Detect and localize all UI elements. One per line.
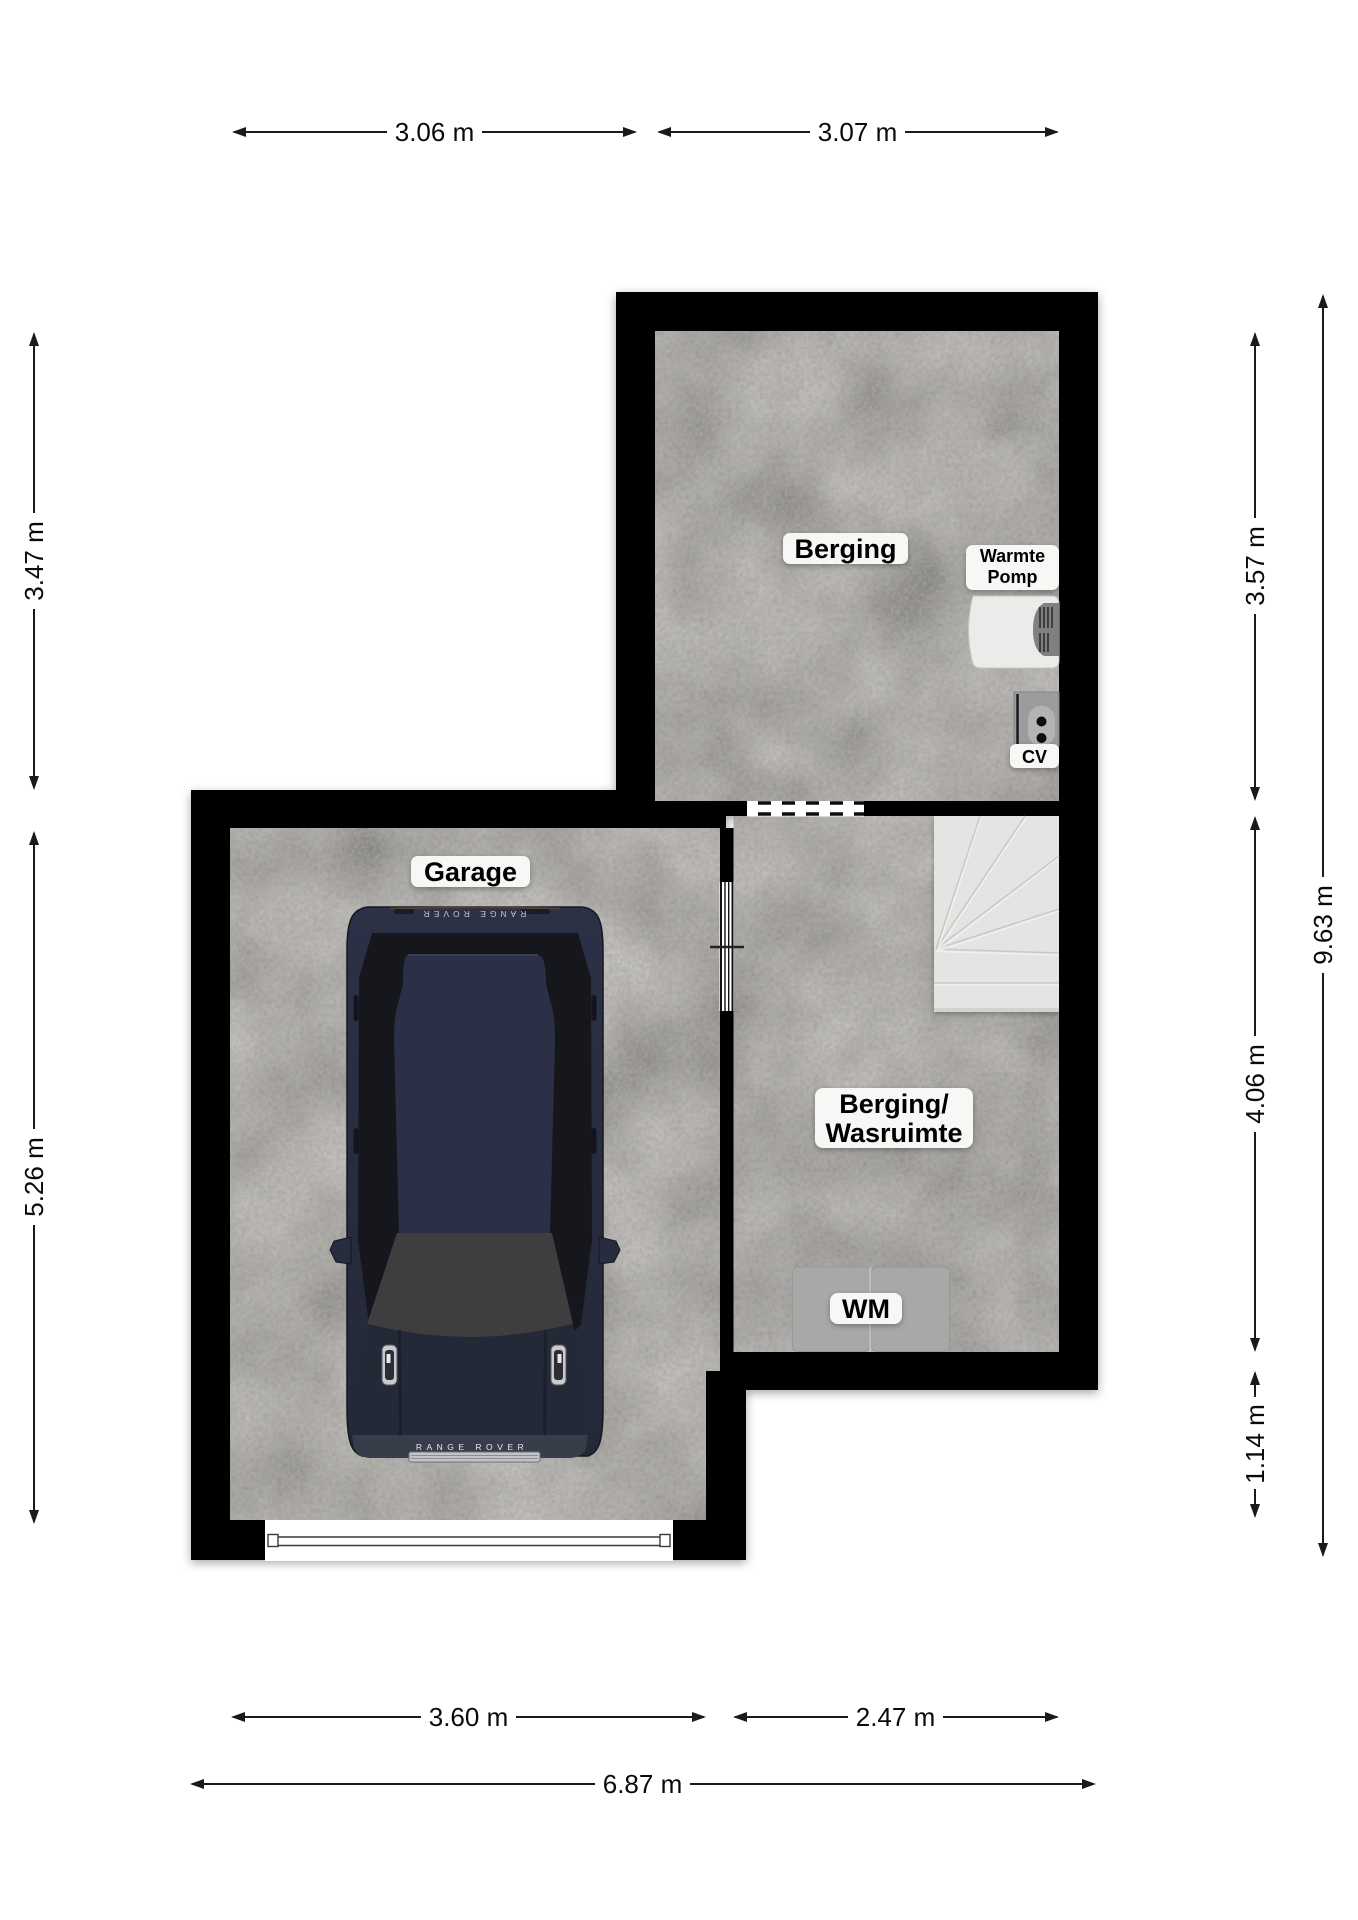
svg-text:WM: WM: [842, 1294, 890, 1324]
svg-text:Garage: Garage: [424, 857, 517, 887]
svg-text:2.47 m: 2.47 m: [856, 1702, 936, 1732]
svg-text:3.06 m: 3.06 m: [395, 117, 475, 147]
svg-text:4.06 m: 4.06 m: [1240, 1044, 1270, 1124]
svg-text:RANGE ROVER: RANGE ROVER: [420, 909, 527, 919]
svg-text:6.87 m: 6.87 m: [603, 1769, 683, 1799]
svg-text:Berging: Berging: [794, 534, 896, 564]
svg-text:9.63 m: 9.63 m: [1308, 885, 1338, 965]
svg-text:1.14 m: 1.14 m: [1240, 1404, 1270, 1484]
svg-text:Berging/: Berging/: [839, 1089, 949, 1119]
svg-text:CV: CV: [1022, 747, 1047, 767]
svg-text:Warmte: Warmte: [980, 546, 1045, 566]
svg-text:3.07 m: 3.07 m: [818, 117, 898, 147]
svg-text:3.47 m: 3.47 m: [19, 521, 49, 601]
svg-text:3.57 m: 3.57 m: [1240, 526, 1270, 606]
svg-text:Wasruimte: Wasruimte: [825, 1118, 962, 1148]
svg-text:5.26 m: 5.26 m: [19, 1137, 49, 1217]
svg-text:RANGE ROVER: RANGE ROVER: [416, 1442, 528, 1452]
svg-text:3.60 m: 3.60 m: [429, 1702, 509, 1732]
svg-text:Pomp: Pomp: [987, 567, 1037, 587]
